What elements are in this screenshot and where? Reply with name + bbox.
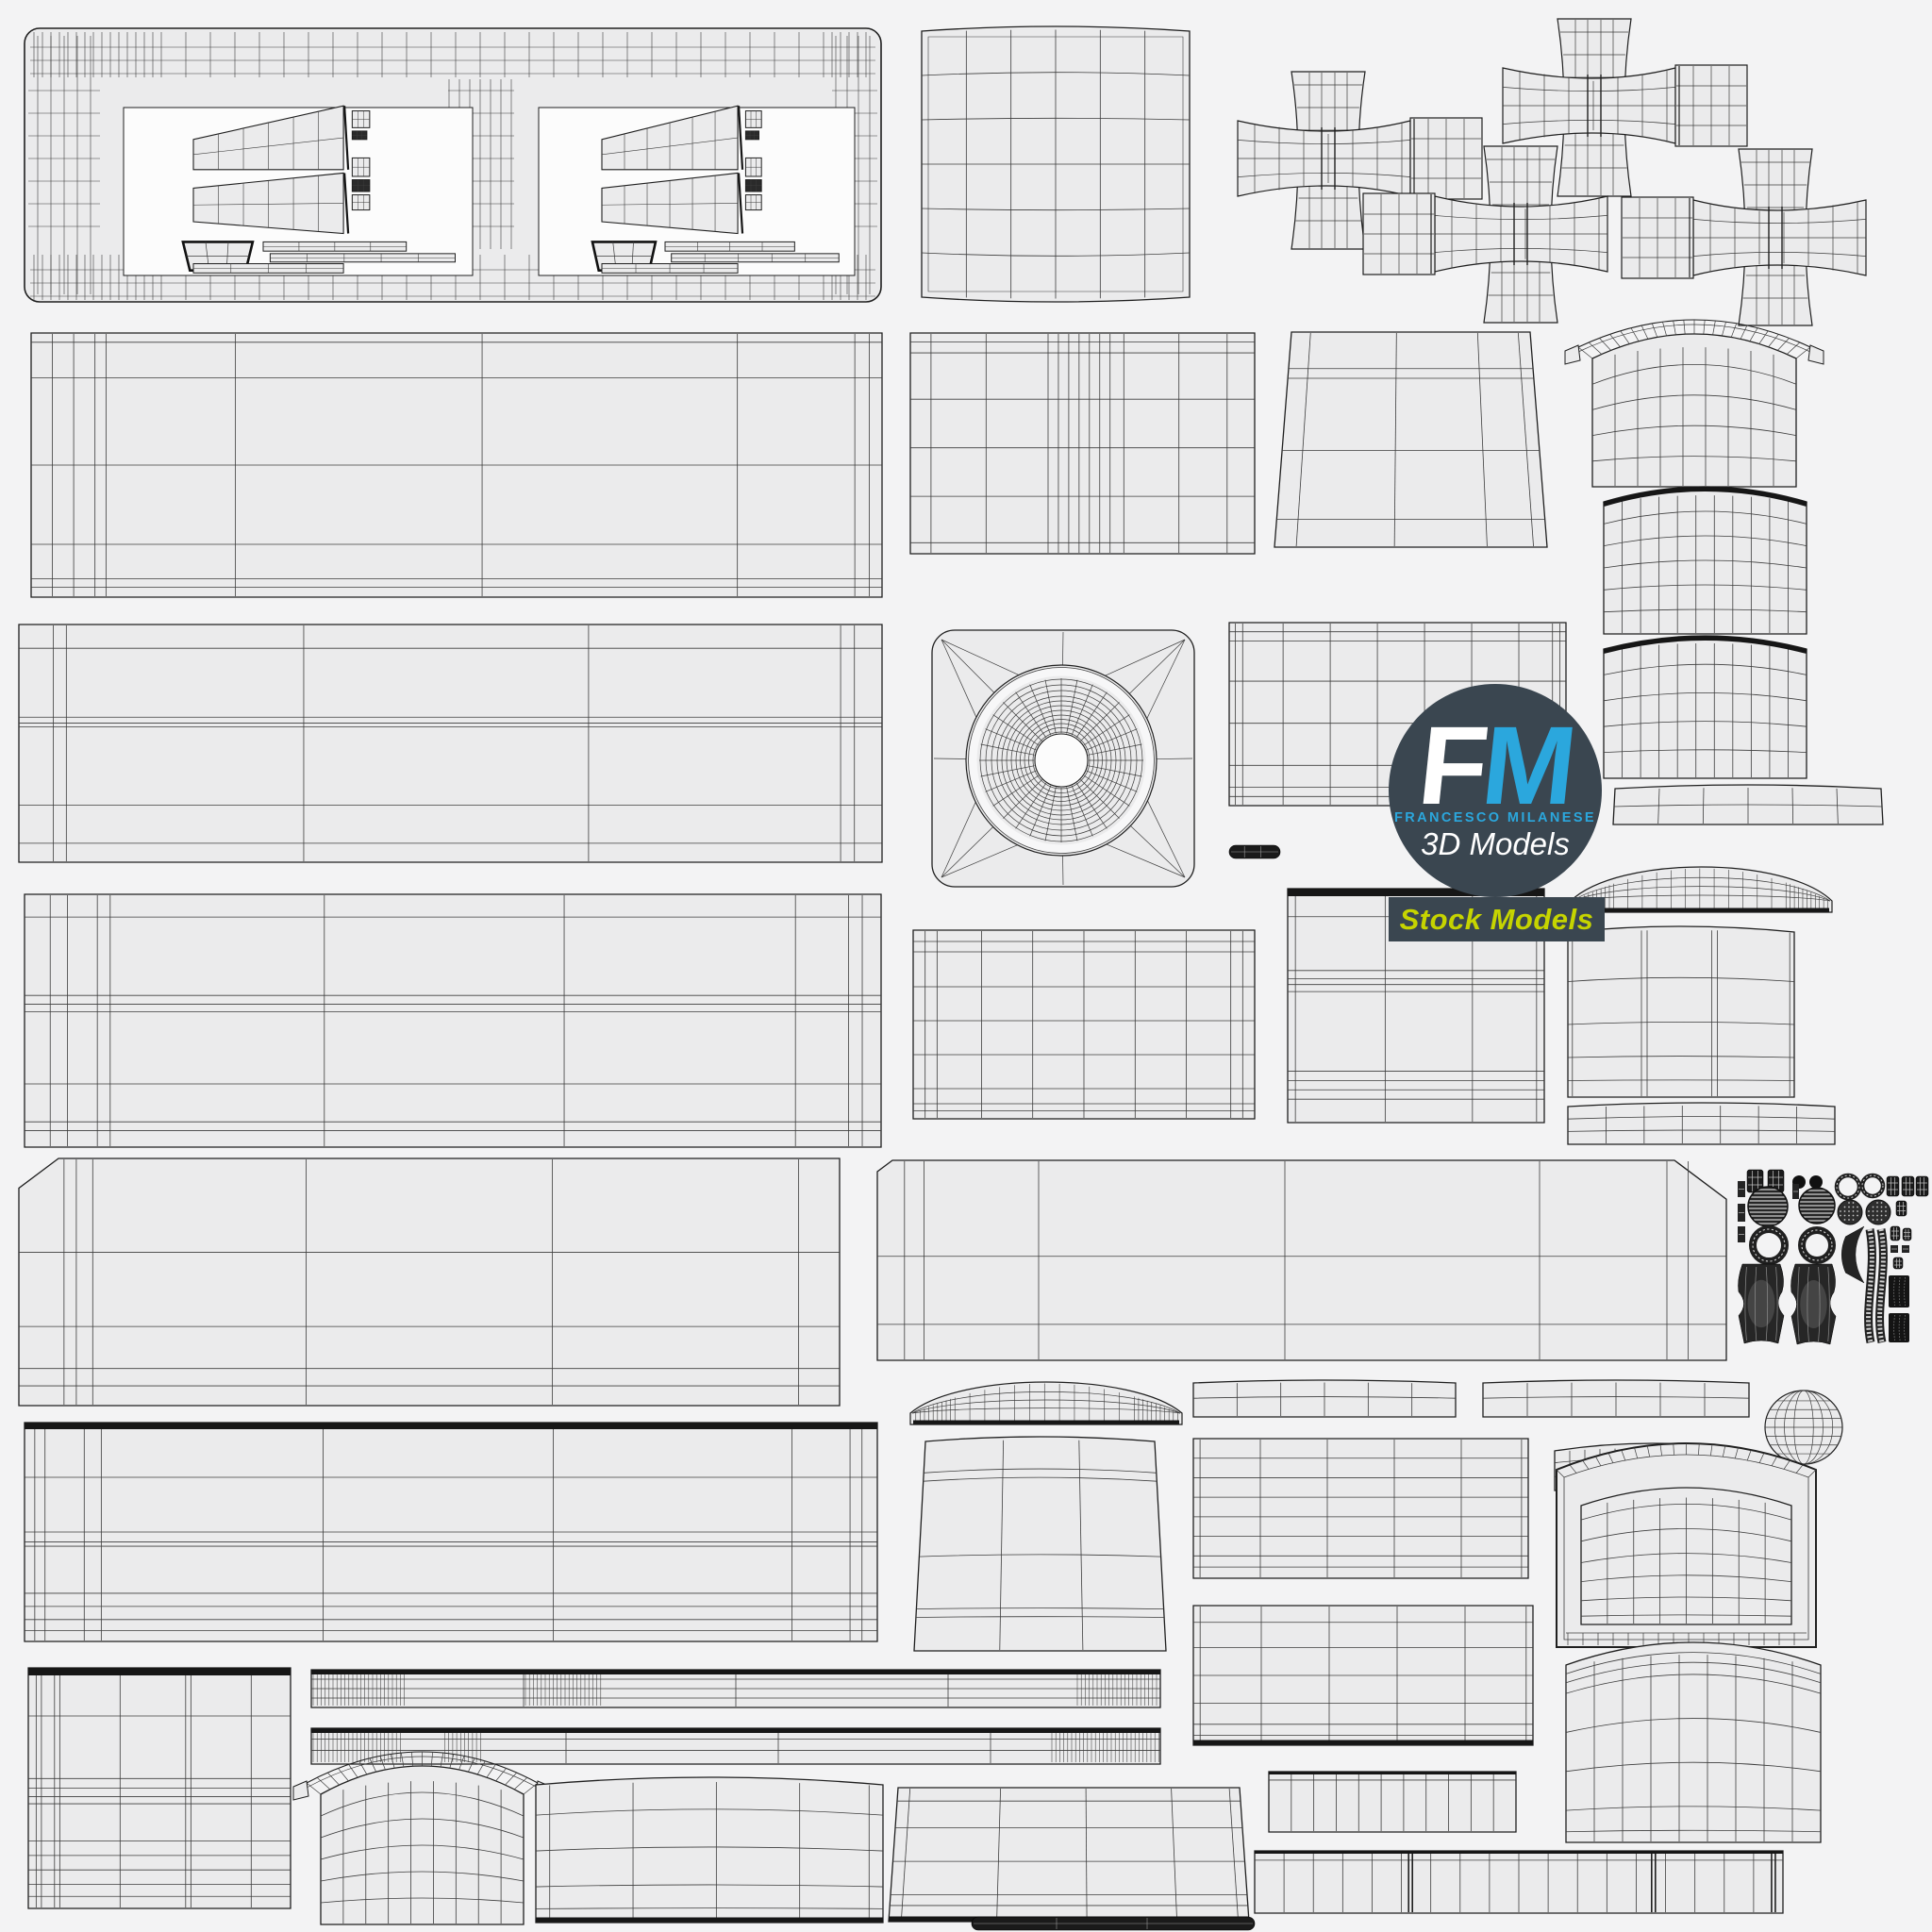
bar-bottom-long [1255,1851,1783,1913]
panel-row4-mid [913,930,1255,1119]
cross-uv-4 [1622,149,1866,325]
long-bar-2 [311,1728,1160,1764]
arch-panel-bottom [1566,1642,1821,1842]
panel-row3-left [19,625,882,862]
panel-bucket-top [1274,332,1547,547]
uv-wireframe-canvas [0,0,1932,1932]
arch-crown-bottom [293,1752,551,1924]
fm-logo-initials: F M [1415,719,1576,813]
fm-logo-watermark: F M FRANCESCO MILANESE 3D Models [1389,684,1602,897]
panel-row2-mid [910,333,1255,554]
arch-frame [1557,1443,1816,1647]
small-parts-cluster [1738,1170,1928,1344]
panel-bucket-mid [914,1437,1166,1651]
arch-panel-right-2 [1604,636,1807,778]
dark-strip-bottom [972,1917,1255,1930]
logo-subtitle: 3D Models [1421,826,1570,862]
bar-bottom-1 [1269,1772,1516,1832]
stock-models-badge: Stock Models [1389,897,1605,941]
logo-letter-m: M [1478,719,1576,813]
dark-dash [1229,845,1280,858]
panel-row6-left [25,1423,877,1641]
panel-row6-mid-2 [1193,1606,1533,1745]
panel-row4-left [25,894,881,1147]
arch-crown-right [1565,320,1824,487]
panel-bottom-1 [536,1777,883,1923]
rounded-grid-panel [922,26,1190,302]
arch-panel-right-1 [1604,487,1807,634]
lens-dome [910,1382,1182,1424]
frame-block [25,28,881,302]
uv-layout-stage: F M FRANCESCO MILANESE 3D Models Stock M… [0,0,1932,1932]
panel-row5-left [19,1158,840,1406]
panel-row7-left [28,1668,291,1908]
long-bar-1 [311,1670,1160,1707]
target-grid [932,630,1194,887]
bar-right-1 [1613,785,1883,824]
panel-row6-mid [1193,1439,1528,1578]
panel-bottom-2 [889,1788,1249,1922]
panel-row5-long [877,1160,1726,1360]
panel-row2-left [31,333,882,597]
lens-right [1571,867,1832,912]
panel-drawers [1568,926,1794,1097]
stock-models-label: Stock Models [1400,903,1594,937]
sphere-grid [1765,1391,1842,1464]
bar-row5-1 [1193,1380,1456,1417]
bar-right-2 [1568,1103,1835,1144]
logo-letter-f: F [1415,719,1489,813]
bar-row5-2 [1483,1380,1749,1417]
